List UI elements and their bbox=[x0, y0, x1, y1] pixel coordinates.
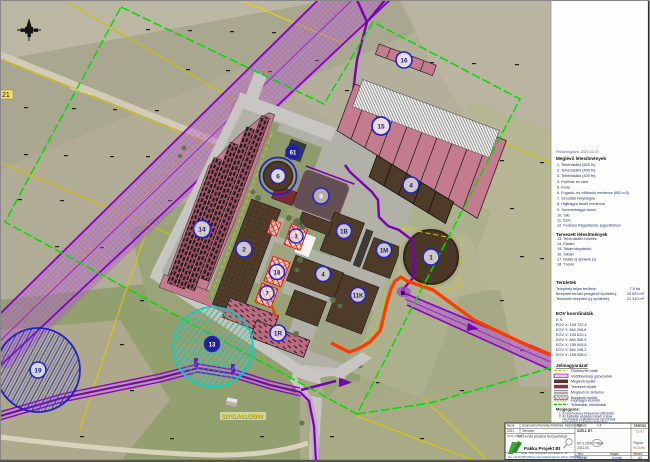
svg-text:16: 16 bbox=[400, 58, 408, 65]
svg-text:Iroda: 7100 Szekszárd, Korsófö: Iroda: 7100 Szekszárd, Korsófölde u. 12. bbox=[521, 451, 568, 455]
svg-text:13. Tehénistálló bővítés: 13. Tehénistálló bővítés bbox=[557, 237, 597, 241]
svg-text:16. Silótér: 16. Silótér bbox=[557, 252, 575, 256]
svg-text:Tel: +36 30 555 0000 E-mail:: Tel: +36 30 555 0000 E-mail: pakkaprojek… bbox=[508, 455, 588, 459]
svg-text:11-02: 11-02 bbox=[636, 430, 644, 434]
svg-text:17. Istálló új épülete (x): 17. Istálló új épülete (x) bbox=[557, 257, 597, 261]
svg-text:3. Tehénistálló (400 fh): 3. Tehénistálló (400 fh) bbox=[557, 174, 596, 178]
svg-text:Védőtávolság gázvezeték: Védőtávolság gázvezeték bbox=[571, 374, 612, 378]
svg-text:E N: E N bbox=[556, 318, 563, 322]
svg-text:4. Fejőház és váró: 4. Fejőház és váró bbox=[557, 180, 588, 184]
svg-text:14: 14 bbox=[198, 227, 206, 234]
svg-text:Jelmagyarázat: Jelmagyarázat bbox=[556, 363, 588, 368]
svg-text:A3: A3 bbox=[638, 456, 642, 460]
svg-text:12. Fedeles trágyatároló, jeg: 12. Fedeles trágyatároló, jegyzőkönyv bbox=[557, 224, 621, 228]
svg-text:1M: 1M bbox=[380, 249, 388, 255]
svg-text:Meglévő létesítmények: Meglévő létesítmények bbox=[556, 156, 606, 161]
svg-text:Meglévő út, térbeton: Meglévő út, térbeton bbox=[571, 390, 604, 394]
svg-text:14. Karám: 14. Karám bbox=[557, 242, 575, 246]
svg-text:M-01/év: M-01/év bbox=[634, 446, 646, 450]
svg-text:2021: 2021 bbox=[507, 429, 514, 433]
svg-text:Szél:: Szél: bbox=[597, 442, 604, 446]
svg-text:EOV X: 195 722,4: EOV X: 195 722,4 bbox=[556, 323, 587, 327]
svg-text:21 310 m²: 21 310 m² bbox=[627, 297, 645, 301]
svg-text:TERVSZ.: TERVSZ. bbox=[634, 424, 648, 428]
svg-text:11. Szín: 11. Szín bbox=[557, 219, 571, 223]
svg-text:7. Szociális helyiségek: 7. Szociális helyiségek bbox=[557, 197, 595, 201]
svg-text:Neve:: Neve: bbox=[507, 424, 515, 428]
svg-text:1: 1 bbox=[429, 255, 433, 262]
svg-text:15. Takarmánytároló: 15. Takarmánytároló bbox=[557, 247, 591, 251]
svg-text:Beépített terület (meglévő épü: Beépített terület (meglévő épületek): bbox=[556, 292, 617, 296]
svg-text:2. Tehénistálló (400 fh): 2. Tehénistálló (400 fh) bbox=[557, 169, 596, 173]
svg-text:18. Tároló: 18. Tároló bbox=[557, 262, 574, 266]
svg-text:2: 2 bbox=[242, 247, 246, 254]
svg-text:1R: 1R bbox=[274, 331, 283, 338]
svg-text:Pakka Projekt Bt: Pakka Projekt Bt bbox=[524, 446, 561, 451]
svg-text:EOV koordináták: EOV koordináták bbox=[556, 311, 593, 316]
svg-text:Rajzsz.: Rajzsz. bbox=[634, 441, 645, 445]
svg-text:2021.03.: 2021.03. bbox=[577, 446, 590, 450]
svg-text:EOV Y: 584 296,3: EOV Y: 584 296,3 bbox=[556, 348, 586, 352]
svg-text:EOV Y: 584 208,8: EOV Y: 584 208,8 bbox=[556, 328, 586, 332]
svg-text:10. Siló: 10. Siló bbox=[557, 213, 570, 217]
svg-text:1. Tehénistálló (600 fh): 1. Tehénistálló (600 fh) bbox=[557, 163, 596, 167]
svg-text:6. Fogadó- és előtároló med: 6. Fogadó- és előtároló medence (800 m3) bbox=[557, 191, 630, 195]
svg-text:13: 13 bbox=[209, 343, 216, 349]
svg-text:Szél-védő fásítási helyszínraj: Szél-védő fásítási helyszínrajz bbox=[517, 434, 568, 439]
svg-text:7,5 ha: 7,5 ha bbox=[629, 287, 640, 291]
svg-text:4: 4 bbox=[409, 183, 413, 190]
svg-text:Meglévő épület: Meglévő épület bbox=[571, 380, 595, 384]
svg-text:EOV Y: 584 355,9: EOV Y: 584 355,9 bbox=[556, 338, 586, 342]
svg-text:Területek: Területek bbox=[556, 280, 577, 285]
svg-text:SZÉLL BT.: SZÉLL BT. bbox=[577, 428, 593, 433]
svg-text:Tervezte:: Tervezte: bbox=[522, 429, 535, 433]
svg-text:11K: 11K bbox=[353, 294, 364, 300]
svg-text:5. Iroda: 5. Iroda bbox=[557, 185, 571, 189]
svg-text:EOV X: 195 598,0: EOV X: 195 598,0 bbox=[556, 353, 587, 357]
svg-text:15: 15 bbox=[377, 124, 385, 131]
svg-text:19: 19 bbox=[34, 368, 42, 375]
svg-text:6: 6 bbox=[276, 174, 280, 181]
svg-text:61: 61 bbox=[290, 151, 297, 157]
svg-text:2021.03.10: 2021.03.10 bbox=[507, 434, 522, 438]
svg-text:52751/001/E/000: 52751/001/E/000 bbox=[222, 414, 263, 420]
svg-text:Felülvizsgálva: 2021.02.10.: Felülvizsgálva: 2021.02.10. bbox=[556, 150, 600, 154]
svg-text:9: 9 bbox=[319, 194, 323, 201]
svg-text:EOV X: 195 505,6: EOV X: 195 505,6 bbox=[556, 343, 587, 347]
svg-text:18 520 m²: 18 520 m² bbox=[627, 292, 645, 296]
svg-text:21: 21 bbox=[2, 92, 10, 99]
svg-text:EOV X: 195 620,1: EOV X: 195 620,1 bbox=[556, 333, 587, 337]
svg-text:Szarvasmarha telep bővítése, h: Szarvasmarha telep bővítése, helyszínraj… bbox=[522, 424, 582, 428]
svg-text:8. Hígtrágya tároló medence: 8. Hígtrágya tároló medence bbox=[557, 202, 605, 206]
svg-text:1:4: 1:4 bbox=[597, 424, 602, 428]
svg-text:Dátum:: Dátum: bbox=[577, 424, 587, 428]
svg-text:Tervezett beépítés (új épülete: Tervezett beépítés (új épületek): bbox=[556, 297, 610, 301]
svg-text:Földrészlet határ: Földrészlet határ bbox=[571, 369, 599, 373]
svg-text:XXXXX: XXXXX bbox=[554, 398, 568, 403]
svg-text:9. Szervestrágya tároló: 9. Szervestrágya tároló bbox=[557, 208, 596, 212]
svg-text:Tervezett épület: Tervezett épület bbox=[571, 385, 596, 389]
svg-text:1B: 1B bbox=[340, 230, 348, 236]
svg-text:Telephely teljes területe:: Telephely teljes területe: bbox=[556, 287, 597, 291]
svg-text:Eredeti: Eredeti bbox=[612, 456, 622, 460]
svg-text:18: 18 bbox=[274, 271, 281, 277]
svg-text:M= 1:2000: M= 1:2000 bbox=[577, 442, 592, 446]
